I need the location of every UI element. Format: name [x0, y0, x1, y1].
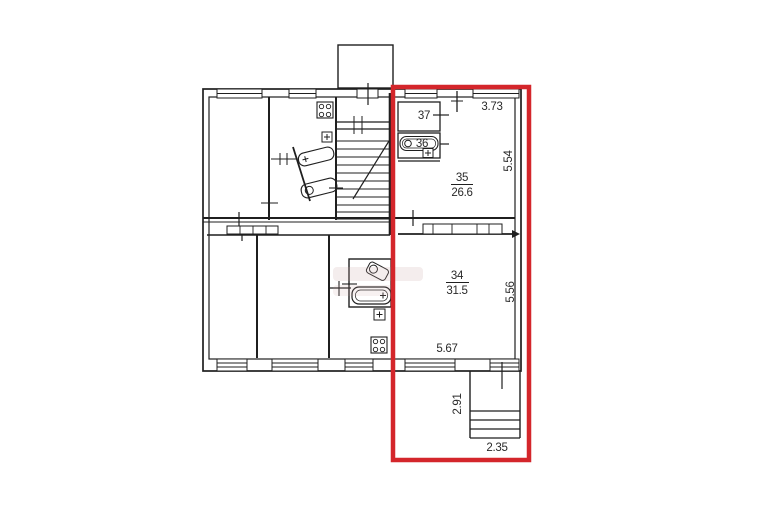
- sink-icon: [374, 309, 385, 320]
- entrance-vestibule: [338, 45, 393, 88]
- room-34-area: 31.5: [446, 285, 467, 297]
- windows-bottom-wall: [217, 359, 519, 371]
- room-37-number: 37: [418, 110, 430, 122]
- upper-left-flat: [261, 102, 338, 203]
- floor-plan-drawing: 37 36 35 26.6 34 31.5 3.73 5.54 5.56 5.6…: [0, 0, 770, 510]
- dim-right-upper: 5.54: [503, 150, 515, 172]
- window: [345, 359, 373, 371]
- stair-direction-line: [353, 141, 389, 199]
- window: [217, 89, 262, 98]
- dim-porch-depth: 2.91: [452, 393, 464, 414]
- porch-steps: [470, 371, 520, 438]
- entrance-door: [357, 83, 378, 105]
- room-35-number: 35: [456, 172, 468, 184]
- closet-row-right: [423, 224, 502, 234]
- stove-icon: [317, 102, 333, 118]
- room-36-number: 36: [416, 138, 428, 150]
- dim-top: 3.73: [481, 101, 502, 113]
- lower-left-flat: [257, 235, 391, 358]
- floor-plan: 37 36 35 26.6 34 31.5 3.73 5.54 5.56 5.6…: [0, 0, 770, 510]
- staircase: [329, 116, 390, 219]
- sink-icon: [322, 132, 332, 142]
- window: [405, 89, 437, 98]
- room-35-area: 26.6: [451, 187, 472, 199]
- stove-icon: [371, 337, 387, 353]
- window: [405, 359, 455, 371]
- window: [217, 359, 247, 371]
- window: [272, 359, 318, 371]
- room-34-number: 34: [451, 270, 464, 282]
- window: [490, 359, 519, 371]
- bathroom-box: [349, 259, 391, 307]
- toilet-icon: [297, 146, 335, 167]
- window: [289, 89, 316, 98]
- wall-arrow-tick: [512, 230, 520, 238]
- watermark: [333, 267, 423, 296]
- closet-row-left: [227, 226, 278, 234]
- dim-bottom: 5.67: [436, 343, 457, 355]
- dim-right-lower: 5.56: [505, 281, 517, 302]
- window: [473, 89, 519, 98]
- dim-porch-width: 2.35: [486, 442, 507, 454]
